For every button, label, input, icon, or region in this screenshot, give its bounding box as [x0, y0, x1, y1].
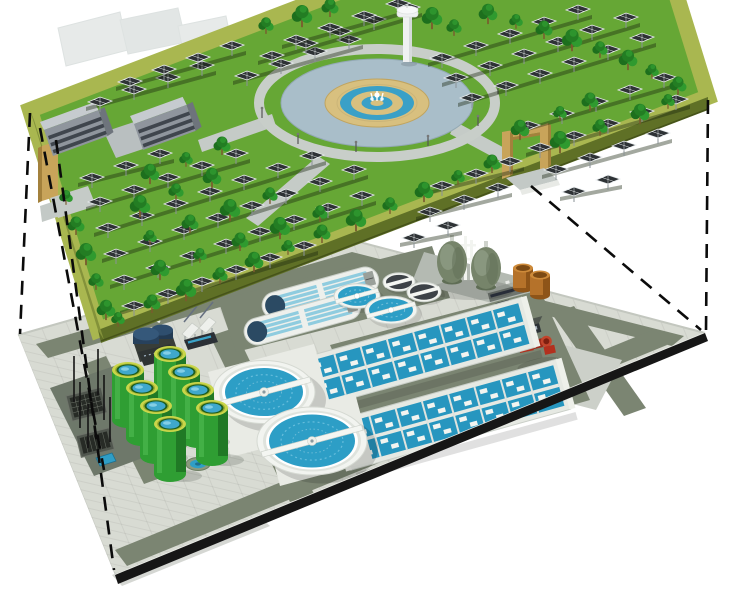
projection-line	[20, 113, 30, 334]
cutaway-illustration	[0, 0, 740, 589]
projection-line	[706, 100, 708, 331]
illustration-canvas	[0, 0, 740, 589]
